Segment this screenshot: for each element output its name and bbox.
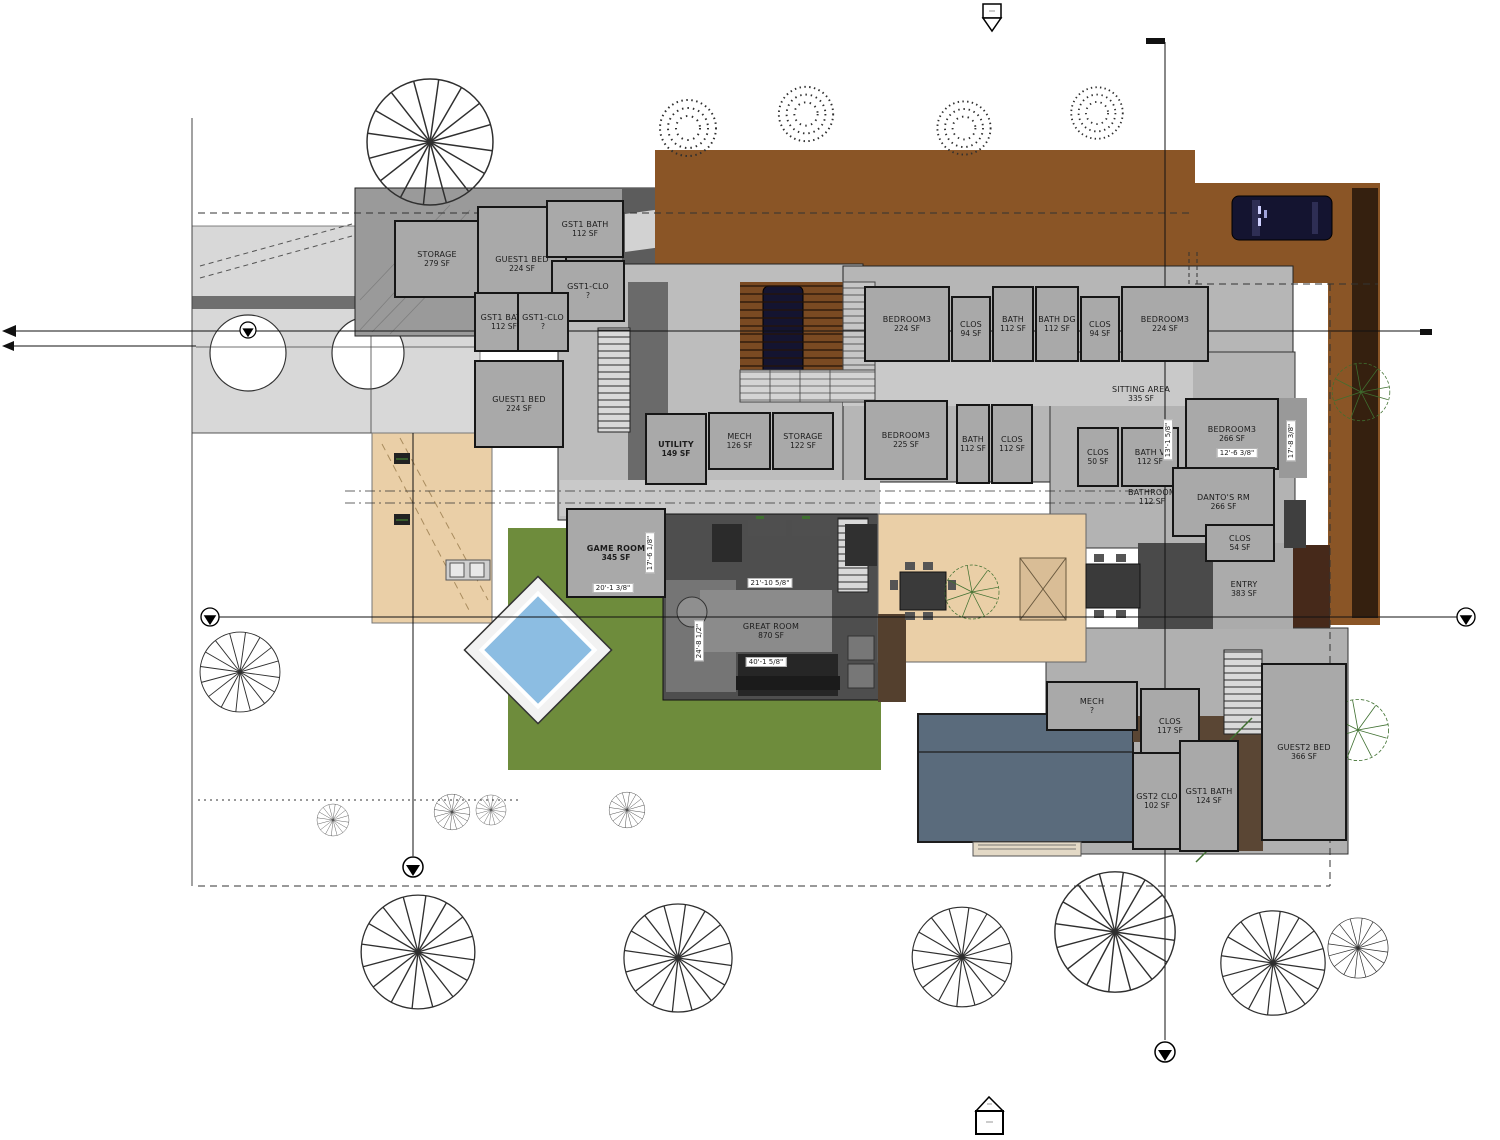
elevation-marker-bottom — [976, 1097, 1003, 1134]
grid-marker-driveway — [240, 322, 256, 338]
elevation-marker-top — [983, 4, 1001, 31]
tree-icon — [609, 792, 645, 828]
tree-icon — [361, 895, 475, 1009]
stipple-tree-icon — [1071, 87, 1123, 139]
tree-icon — [1055, 872, 1175, 992]
site-plan-drawing — [0, 0, 1500, 1140]
west-patio-region — [372, 433, 492, 623]
left-arrow-marker — [2, 325, 16, 337]
grid-marker-south-a — [403, 857, 423, 877]
tree-icon — [912, 907, 1012, 1007]
grid-marker-south-b — [1155, 1042, 1175, 1062]
tree-icon — [476, 795, 506, 825]
slate-roof-building — [918, 714, 1133, 856]
floor-plan-canvas: STORAGE279 SFGUEST1 BED224 SFGST1 BATH11… — [0, 0, 1500, 1140]
tree-icon — [434, 794, 470, 830]
tree-icon — [200, 632, 280, 712]
tree-icon — [317, 804, 349, 836]
stipple-tree-icon — [660, 100, 716, 156]
tree-icon — [1328, 918, 1388, 978]
car-top-right — [1232, 196, 1332, 240]
stipple-tree-icon — [937, 101, 990, 154]
pergola-carport — [740, 282, 875, 402]
tree-icon — [624, 904, 732, 1012]
tree-icon — [1221, 911, 1325, 1015]
grid-marker-east — [1457, 608, 1475, 626]
grid-marker-west — [201, 608, 219, 626]
tree-icon — [367, 79, 493, 205]
stipple-tree-icon — [779, 87, 833, 141]
